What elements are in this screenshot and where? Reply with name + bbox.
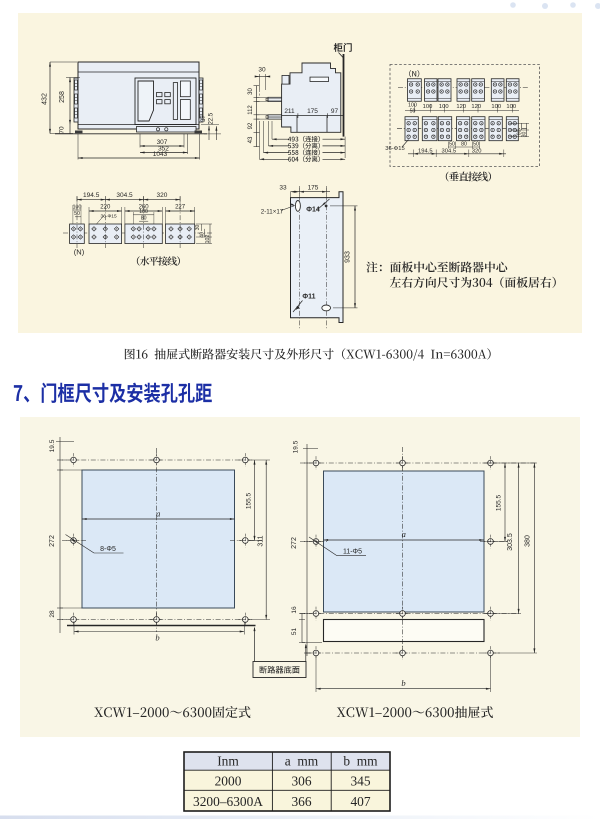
svg-text:30: 30	[522, 132, 528, 138]
svg-text:227: 227	[175, 205, 186, 211]
svg-text:120: 120	[471, 104, 481, 110]
svg-text:97: 97	[331, 108, 339, 115]
svg-text:303.5: 303.5	[507, 533, 514, 551]
svg-text:30: 30	[248, 88, 254, 95]
svg-text:3200–6300A: 3200–6300A	[193, 794, 263, 809]
svg-text:366: 366	[291, 794, 311, 809]
svg-text:37: 37	[201, 115, 207, 122]
svg-text:Φ11: Φ11	[302, 294, 315, 301]
svg-text:380: 380	[525, 535, 532, 547]
svg-text:100: 100	[73, 204, 82, 210]
svg-text:1043: 1043	[153, 151, 168, 158]
svg-text:100: 100	[491, 104, 501, 110]
svg-text:320: 320	[472, 148, 482, 154]
svg-text:180: 180	[139, 209, 148, 215]
svg-text:Φ14: Φ14	[306, 207, 320, 214]
svg-text:b mm: b mm	[343, 754, 378, 769]
svg-text:a: a	[156, 509, 160, 519]
svg-text:50: 50	[74, 211, 80, 217]
svg-text:19.5: 19.5	[49, 439, 56, 452]
svg-text:258: 258	[59, 91, 66, 103]
svg-text:80: 80	[141, 216, 147, 222]
svg-text:28: 28	[49, 610, 56, 618]
svg-text:155.5: 155.5	[496, 494, 503, 511]
svg-text:80: 80	[461, 142, 467, 148]
svg-text:70: 70	[59, 126, 66, 134]
svg-text:50: 50	[449, 142, 455, 148]
svg-text:120: 120	[456, 104, 466, 110]
svg-text:30: 30	[258, 67, 266, 74]
svg-text:100: 100	[506, 104, 516, 110]
svg-text:b: b	[401, 678, 405, 688]
svg-text:407: 407	[350, 794, 370, 809]
svg-text:2-11×17: 2-11×17	[261, 209, 284, 216]
svg-text:272: 272	[291, 537, 298, 549]
svg-text:19.5: 19.5	[293, 440, 300, 453]
svg-text:43: 43	[248, 136, 254, 143]
svg-text:51: 51	[291, 628, 298, 636]
svg-text:50: 50	[473, 142, 479, 148]
svg-text:306: 306	[291, 774, 311, 789]
svg-text:50: 50	[410, 108, 416, 114]
svg-text:8-Φ5: 8-Φ5	[100, 546, 116, 553]
svg-text:194.5: 194.5	[83, 192, 100, 199]
svg-text:311: 311	[257, 535, 264, 546]
svg-text:345: 345	[350, 774, 370, 789]
svg-text:36-Φ15: 36-Φ15	[385, 146, 404, 152]
svg-text:Inm: Inm	[217, 754, 239, 769]
svg-text:320: 320	[156, 192, 167, 199]
svg-text:22.5: 22.5	[209, 112, 215, 124]
svg-text:220: 220	[100, 205, 111, 211]
svg-text:304.5: 304.5	[442, 148, 457, 154]
svg-text:a mm: a mm	[285, 754, 319, 769]
svg-text:432: 432	[42, 93, 49, 105]
svg-text:933: 933	[345, 251, 352, 263]
svg-text:272: 272	[49, 535, 56, 547]
svg-text:(N): (N)	[74, 248, 85, 257]
svg-text:100: 100	[423, 104, 433, 110]
svg-text:175: 175	[308, 185, 319, 192]
svg-text:33: 33	[279, 185, 287, 192]
svg-text:155.5: 155.5	[246, 492, 253, 509]
svg-text:175: 175	[307, 108, 318, 115]
svg-text:a: a	[402, 529, 406, 539]
svg-text:92: 92	[248, 122, 254, 129]
svg-text:304.5: 304.5	[116, 192, 133, 199]
svg-text:100: 100	[439, 104, 449, 110]
svg-text:30: 30	[195, 225, 201, 231]
svg-text:211: 211	[284, 108, 295, 115]
svg-text:16: 16	[291, 606, 298, 614]
svg-text:11-Φ5: 11-Φ5	[343, 548, 362, 555]
svg-text:b: b	[155, 633, 159, 643]
svg-text:112: 112	[248, 105, 254, 115]
svg-text:2000: 2000	[215, 774, 242, 789]
svg-text:102: 102	[205, 235, 211, 244]
svg-text:194.5: 194.5	[418, 148, 433, 154]
